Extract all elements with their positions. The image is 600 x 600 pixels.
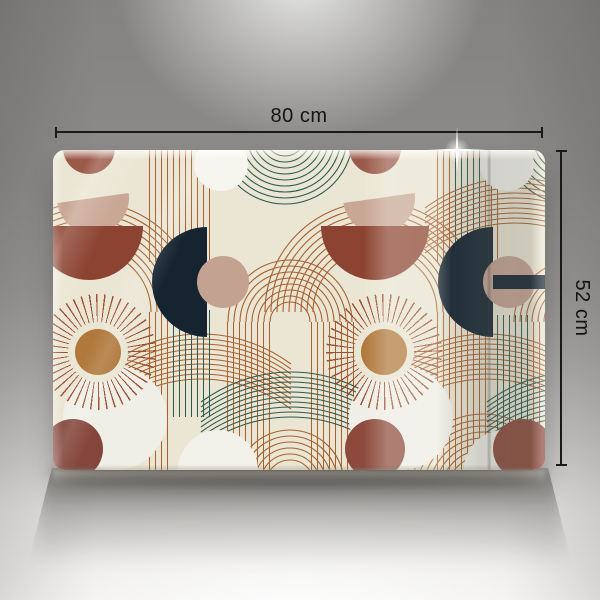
height-dimension-label: 52 cm [570,280,593,337]
product-photo-scene: 80 cm 52 cm [0,0,600,600]
width-dimension-label: 80 cm [271,105,328,128]
height-dimension-line: 52 cm [560,150,562,466]
sun-motif [326,294,442,410]
width-dimension-line: 80 cm [55,131,543,133]
glass-board-image [53,150,545,470]
panel-floor-reflection [53,470,545,484]
